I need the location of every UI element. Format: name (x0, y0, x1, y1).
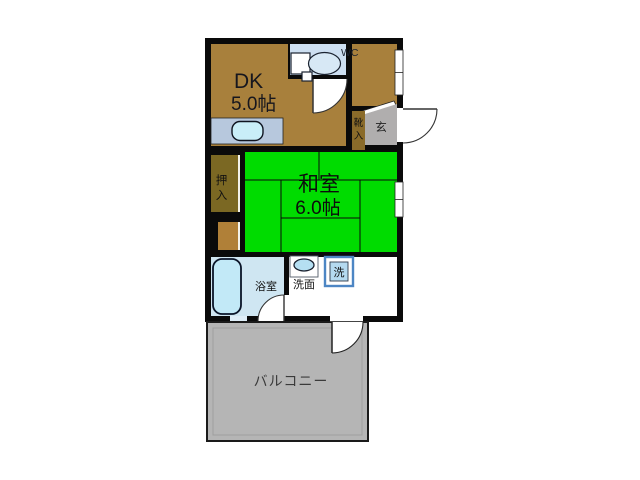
bath-wall (284, 257, 289, 295)
entrance-door-gap (397, 108, 403, 142)
vanity-sink-icon (294, 259, 314, 271)
genkan-label: 玄 (375, 120, 387, 134)
oshiire-label-1: 押 (216, 173, 228, 187)
toilet-flush-icon (302, 72, 312, 81)
washitsu-label: 和室 (298, 173, 340, 196)
washing-machine-label: 洗 (334, 266, 345, 279)
dk-label: DK (234, 70, 263, 93)
bath-door-gap (284, 295, 289, 316)
kitchen-sink-icon (232, 122, 263, 141)
shoe-cabinet-label-2: 入 (354, 131, 364, 142)
bathroom-label: 浴室 (255, 279, 277, 293)
dk-size-label: 5.0帖 (231, 93, 276, 115)
toilet-tank-icon (291, 53, 310, 74)
floorplan-image: WC 玄 靴 入 DK 5.0帖 押 入 和室 6.0帖 浴室 洗面 洗 (0, 0, 640, 480)
washitsu-size-label: 6.0帖 (295, 197, 340, 219)
wc-label: WC (341, 47, 359, 59)
floorplan-svg: WC 玄 靴 入 DK 5.0帖 押 入 和室 6.0帖 浴室 洗面 洗 (0, 0, 640, 480)
oshiire-label-2: 入 (216, 189, 228, 202)
closet-door-line (238, 155, 240, 212)
closet-lower-door-line (238, 222, 240, 250)
entrance-door-arc (403, 109, 437, 143)
balcony-label: バルコニー (254, 373, 329, 389)
closet-lower (218, 222, 238, 250)
bathtub-icon (213, 259, 241, 314)
toilet-bowl-icon (309, 53, 341, 75)
shoe-cabinet-label-1: 靴 (354, 117, 364, 129)
corridor-entry (352, 44, 397, 106)
washroom-label: 洗面 (293, 278, 315, 291)
